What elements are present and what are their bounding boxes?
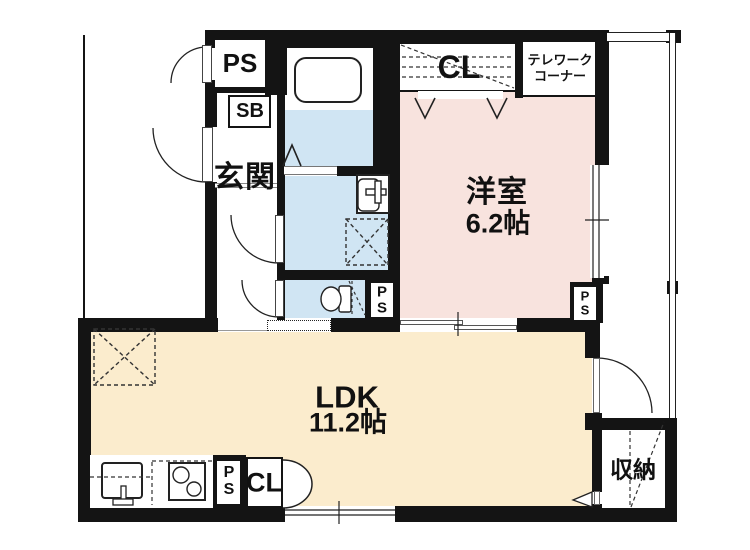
ps-west-s: S bbox=[581, 304, 590, 317]
toilet-room-floor bbox=[285, 280, 365, 318]
ps-kitchen-s: S bbox=[224, 482, 235, 498]
wall bbox=[592, 508, 677, 522]
wall bbox=[205, 182, 217, 320]
telework-label-line2: コーナー bbox=[534, 70, 586, 83]
entrance-label: 玄関 bbox=[214, 163, 276, 193]
wall bbox=[592, 430, 602, 492]
kitchen-stove bbox=[168, 462, 206, 501]
balcony-rail-top bbox=[607, 32, 669, 42]
wall bbox=[585, 323, 600, 358]
bathtub bbox=[294, 57, 362, 103]
telework-label-line1: テレワーク bbox=[527, 54, 592, 67]
bathroom-door-threshold bbox=[284, 166, 337, 175]
kitchen-sink bbox=[101, 462, 143, 499]
balcony-rail-right bbox=[669, 33, 676, 418]
dotted-opening bbox=[267, 320, 331, 331]
entrance-door-leaf bbox=[202, 127, 213, 182]
wall bbox=[213, 87, 285, 93]
ps-toilet-p: P bbox=[377, 285, 387, 300]
building-edge-line bbox=[83, 35, 85, 318]
ps-toilet-s: S bbox=[377, 301, 387, 316]
closet-top-label: CL bbox=[438, 51, 481, 83]
wall bbox=[595, 30, 609, 165]
balcony-door-leaf bbox=[593, 358, 600, 413]
wall bbox=[265, 30, 287, 95]
corridor-opening bbox=[218, 318, 267, 331]
wall bbox=[331, 318, 400, 332]
ldk-window bbox=[285, 506, 395, 520]
wall bbox=[78, 318, 218, 332]
storage-label: 収納 bbox=[610, 459, 656, 482]
storage-door-leaf bbox=[594, 491, 600, 505]
closet-top-opening bbox=[418, 91, 503, 99]
wall bbox=[373, 42, 400, 176]
western-window bbox=[590, 165, 604, 278]
wall bbox=[665, 418, 677, 522]
washbasin-counter bbox=[356, 174, 390, 214]
ps-west-p: P bbox=[581, 290, 590, 303]
wall bbox=[78, 506, 285, 522]
closet-bottom-label: CL bbox=[246, 470, 282, 497]
toilet-door-leaf bbox=[275, 280, 284, 317]
shoe-box-label: SB bbox=[236, 101, 264, 121]
western-room-size: 6.2帖 bbox=[466, 211, 531, 238]
ps-hatch-door-leaf bbox=[202, 45, 212, 83]
sliding-door-panel bbox=[454, 325, 517, 330]
pipe-space-top-label: PS bbox=[223, 50, 258, 76]
ldk-size: 11.2帖 bbox=[309, 410, 387, 437]
floor-plan: PS SB 玄関 CL テレワーク コーナー 洋室 6.2帖 P S P S L… bbox=[0, 0, 750, 550]
wall bbox=[395, 506, 600, 522]
bathroom-lower-floor bbox=[285, 110, 373, 166]
western-room-label: 洋室 bbox=[466, 178, 528, 208]
washroom-door-leaf bbox=[275, 215, 284, 263]
ps-kitchen-p: P bbox=[224, 465, 235, 481]
